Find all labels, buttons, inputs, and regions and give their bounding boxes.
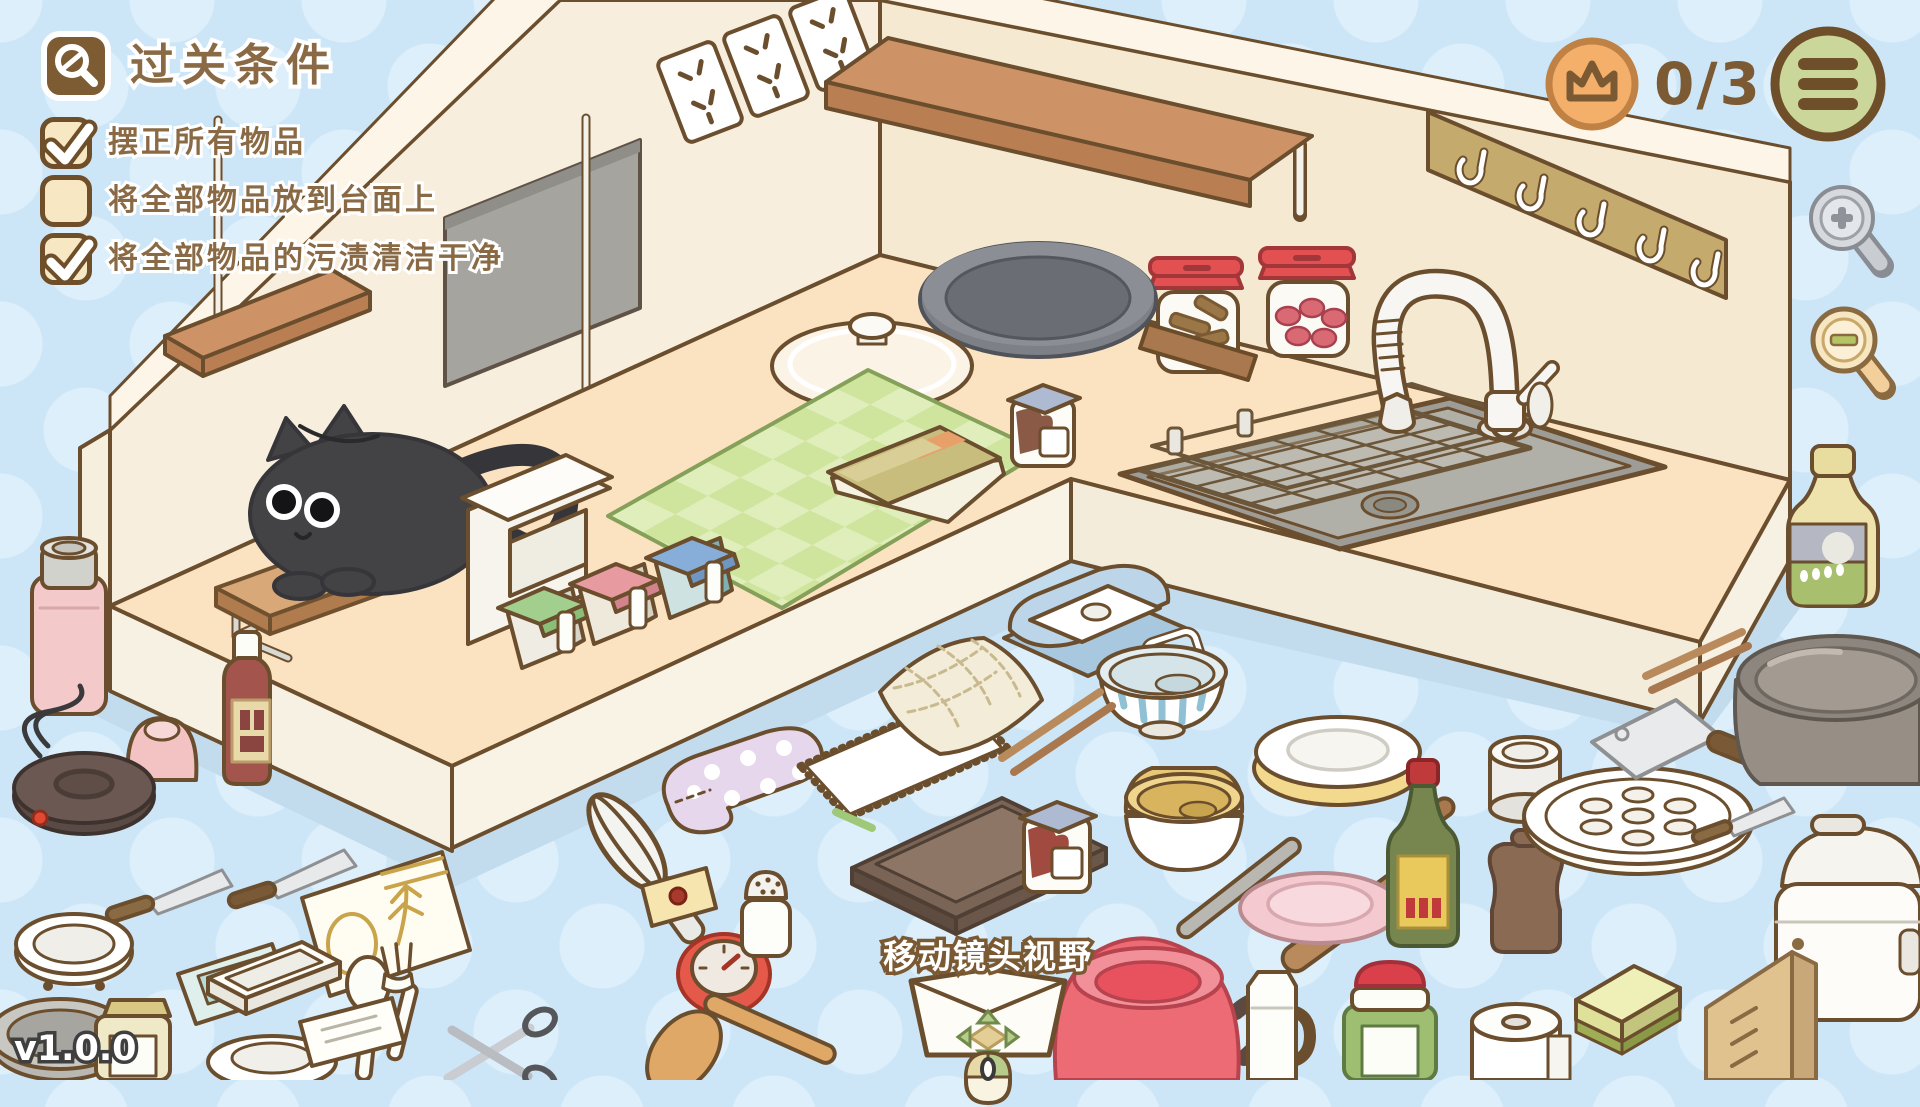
condition-2-checkbox [40, 175, 92, 227]
candy-jar[interactable] [1260, 248, 1354, 356]
condition-3-label: 将全部物品的污渍清洁干净 将全部物品的污渍清洁干净 [108, 244, 504, 274]
version-label: v1.0.0 v1.0.0 [14, 1032, 136, 1067]
plate-stack[interactable] [1254, 717, 1422, 805]
condition-2-label: 将全部物品放到台面上 将全部物品放到台面上 [108, 186, 438, 216]
zoom-in-magnifier-icon [1811, 187, 1882, 266]
scissors[interactable] [448, 1004, 559, 1080]
wooden-spatula[interactable] [632, 992, 838, 1080]
jam-jar-small[interactable] [1020, 802, 1096, 892]
camera-hint-label: 移动镜头视野 移动镜头视野 [883, 940, 1093, 973]
hamburger-icon [1775, 31, 1881, 137]
pink-plate[interactable] [1240, 873, 1400, 943]
crown-icon [1544, 36, 1640, 132]
stacked-bowls[interactable] [1126, 768, 1242, 870]
mouse-drag-icon [962, 1049, 1014, 1107]
pickle-jar[interactable] [1344, 962, 1436, 1080]
salt-shaker[interactable] [742, 872, 790, 956]
magnifier-check-icon [40, 30, 112, 102]
camera-pan-icon [903, 967, 1073, 1063]
condition-1-label: 摆正所有物品 摆正所有物品 [108, 128, 306, 158]
white-tray[interactable] [208, 942, 340, 1014]
quest-condition-row: 将全部物品放到台面上 将全部物品放到台面上 [40, 176, 504, 226]
steamer-plate[interactable] [1524, 768, 1752, 874]
oil-bottle[interactable] [1788, 446, 1878, 606]
milk-jug[interactable] [1248, 972, 1310, 1080]
camera-hint: 移动镜头视野 移动镜头视野 [858, 940, 1118, 1107]
strainer-bowl[interactable] [16, 914, 132, 991]
menu-button[interactable] [1766, 22, 1890, 146]
game-screen: { "quest_panel": { "title": "过关条件", "ico… [0, 0, 1920, 1080]
check-icon [37, 110, 101, 174]
zoom-out-button[interactable] [1800, 300, 1896, 410]
knife-block[interactable] [1706, 952, 1816, 1080]
jam-jar[interactable] [1008, 385, 1080, 466]
quest-panel: 过关条件 过关条件 摆正所有物品 摆正所有物品 将全部物品放到台面上 将全部物品… [40, 30, 504, 284]
inner-pot[interactable] [1735, 636, 1920, 784]
quest-panel-title: 过关条件 过关条件 [130, 44, 338, 88]
sponge[interactable] [1576, 966, 1680, 1054]
condition-3-checkbox [40, 233, 92, 285]
zoom-out-magnifier-icon [1813, 309, 1884, 388]
condition-1-checkbox [40, 117, 92, 169]
striped-bowl[interactable] [1098, 646, 1226, 738]
check-icon [37, 226, 101, 290]
thermos[interactable] [32, 538, 106, 714]
crown-progress-value: 0/3 [1654, 50, 1762, 118]
paper-roll[interactable] [1472, 1004, 1570, 1080]
quest-condition-row: 将全部物品的污渍清洁干净 将全部物品的污渍清洁干净 [40, 234, 504, 284]
zoom-in-button[interactable] [1798, 178, 1894, 288]
quest-condition-row: 摆正所有物品 摆正所有物品 [40, 118, 504, 168]
crown-progress: 0/3 [1544, 36, 1762, 132]
